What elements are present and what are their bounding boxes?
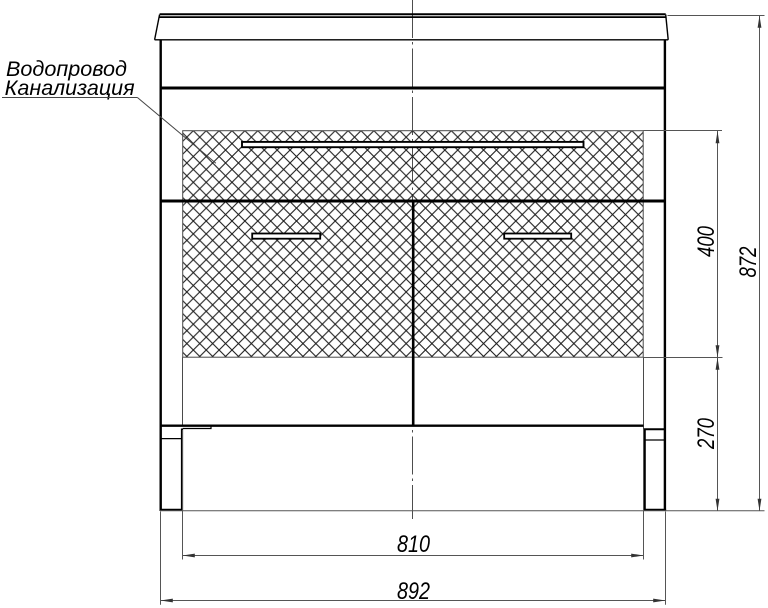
svg-text:810: 810 [397, 531, 430, 558]
svg-text:Канализация: Канализация [5, 76, 136, 100]
svg-text:270: 270 [693, 418, 720, 450]
svg-text:872: 872 [735, 246, 762, 277]
svg-text:892: 892 [397, 578, 430, 605]
svg-text:400: 400 [693, 226, 720, 257]
